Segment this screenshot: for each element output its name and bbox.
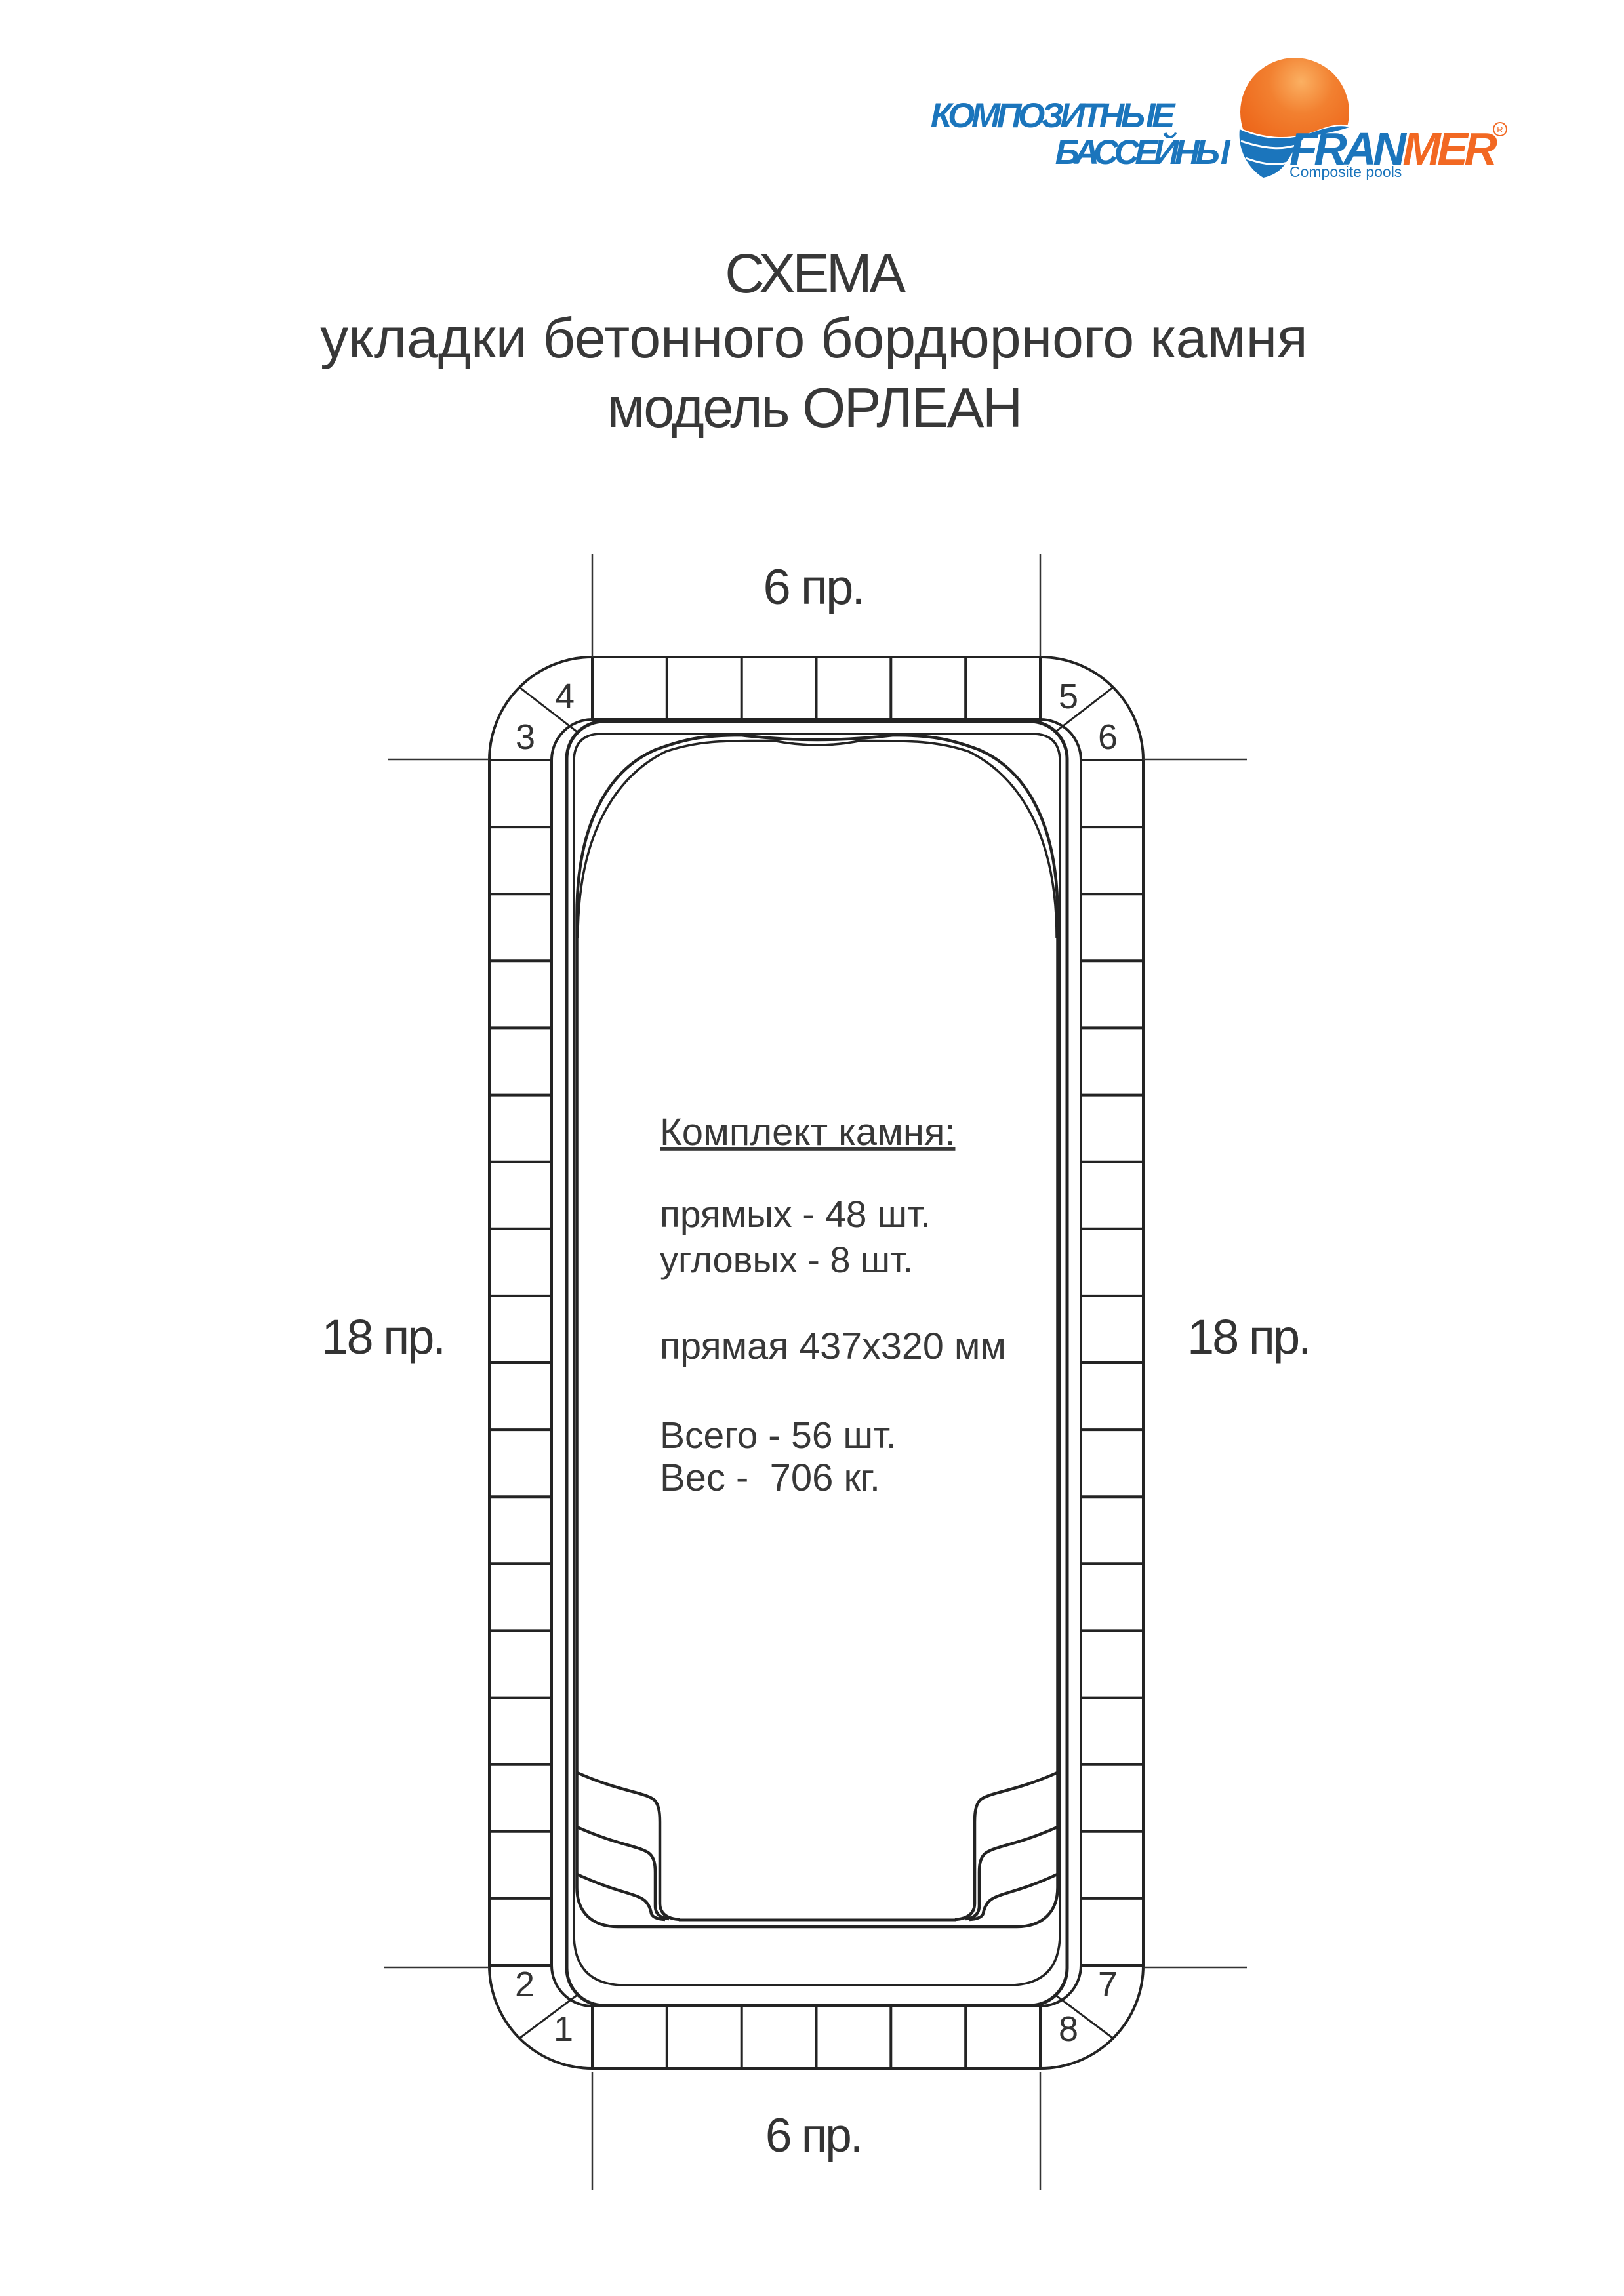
svg-text:КОМПОЗИТНЫЕ: КОМПОЗИТНЫЕ: [931, 96, 1176, 135]
svg-text:укладки бетонного бордюрного к: укладки бетонного бордюрного камня: [320, 307, 1307, 370]
svg-text:Composite pools: Composite pools: [1289, 163, 1402, 180]
svg-text:6 пр.: 6 пр.: [763, 559, 864, 615]
svg-text:Комплект камня:: Комплект камня:: [660, 1111, 955, 1154]
svg-text:БАССЕЙНЫ: БАССЕЙНЫ: [1055, 131, 1231, 172]
svg-text:3: 3: [516, 717, 535, 757]
svg-text:6 пр.: 6 пр.: [765, 2109, 861, 2162]
svg-text:R: R: [1497, 125, 1503, 134]
svg-text:прямых - 48 шт.: прямых - 48 шт.: [660, 1194, 931, 1236]
svg-text:1: 1: [554, 2009, 573, 2049]
svg-text:Всего - 56 шт.: Всего - 56 шт.: [660, 1415, 897, 1457]
svg-text:СХЕМА: СХЕМА: [725, 243, 906, 304]
svg-text:модель ОРЛЕАН: модель ОРЛЕАН: [607, 377, 1021, 439]
svg-text:прямая 437х320 мм: прямая 437х320 мм: [660, 1325, 1006, 1367]
svg-text:2: 2: [515, 1965, 535, 2004]
svg-text:4: 4: [555, 677, 575, 716]
svg-text:Вес - 706 кг.: Вес - 706 кг.: [660, 1457, 880, 1499]
svg-text:6: 6: [1098, 717, 1118, 757]
svg-text:8: 8: [1059, 2009, 1078, 2049]
svg-text:7: 7: [1098, 1965, 1118, 2004]
svg-text:18 пр.: 18 пр.: [321, 1310, 444, 1364]
svg-text:угловых - 8 шт.: угловых - 8 шт.: [660, 1239, 913, 1280]
svg-text:18 пр.: 18 пр.: [1187, 1310, 1310, 1364]
svg-text:5: 5: [1059, 677, 1078, 716]
